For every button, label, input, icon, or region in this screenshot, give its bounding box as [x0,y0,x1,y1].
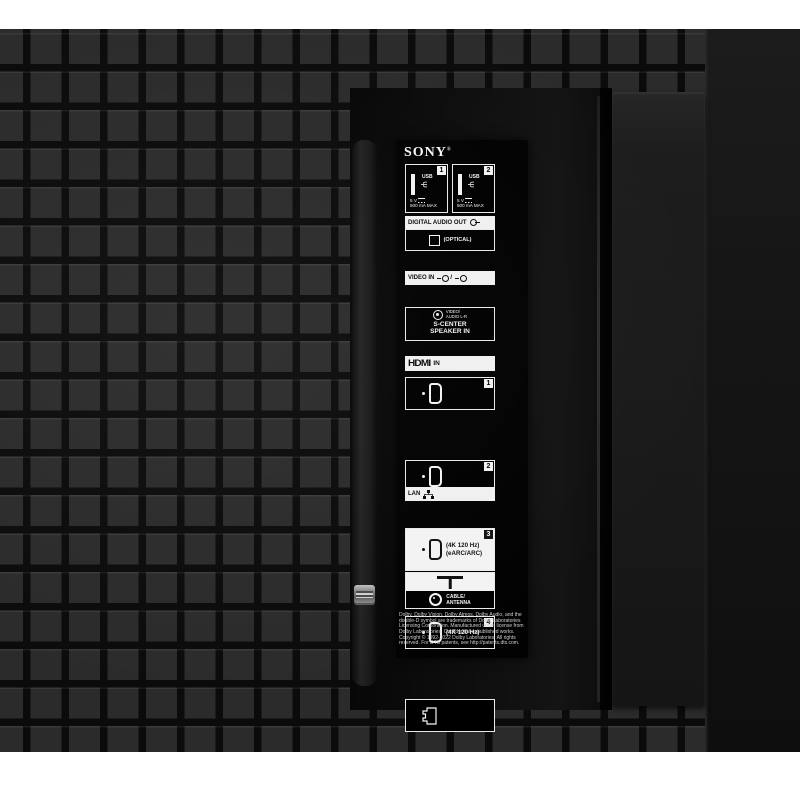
hdmi-connector-icon [429,383,442,404]
usb-port-2: 2 USB Ψ 5 V 500 mA MAX [452,164,495,213]
sony-logo: SONY® [404,145,451,161]
hdmi-port-1: 1 [405,377,495,410]
dc-voltage-icon [465,198,472,203]
ethernet-port-icon [420,706,438,726]
lan-port [405,699,495,732]
hdmi-in-header: HDMI IN [405,356,495,371]
terminal-cover-door [612,92,705,706]
registered-mark: ® [447,147,451,152]
port-number-badge: 2 [484,166,493,175]
cable-antenna-port: CABLE/ ANTENNA [405,572,495,609]
hdmi-logo: HDMI [408,358,430,368]
hdmi-connector-icon [429,466,442,487]
antenna-icon-area [406,573,494,591]
slash-separator: / [450,275,452,281]
minijack-icon [433,310,443,320]
optical-label: (OPTICAL) [444,237,472,243]
usb-port-1: 1 USB Ψ 5 V 500 mA MAX [405,164,448,213]
hdmi3-capability-label: (4K 120 Hz) (eARC/ARC) [446,542,482,557]
av-jack-icon [437,275,447,282]
audio-out-icon [470,219,477,226]
dc-voltage-icon [418,198,425,203]
usb-power-rating: 5 V 500 mA MAX [410,198,437,209]
port-number-badge: 3 [484,530,493,539]
port-dot-icon [422,392,425,395]
usb-section: 1 USB Ψ 5 V 500 mA MAX 2 USB Ψ 5 V 500 m… [405,164,495,213]
video-in-header: VIDEO IN / [405,271,495,285]
usb-power-rating: 5 V 500 mA MAX [457,198,484,209]
port-dot-icon [422,548,425,551]
port-number-badge: 2 [484,462,493,471]
av-jack-icon [455,275,465,282]
hdmi-in-label: IN [433,360,440,367]
usb-trident-icon: Ψ [419,181,428,188]
hdmi-connector-icon [429,539,442,560]
optical-out-port: (OPTICAL) [405,229,495,251]
network-icon [423,490,434,499]
right-frame-column [705,29,800,752]
lan-header: LAN [405,487,495,501]
video-audio-label: VIDEO/ AUDIO L-R [446,310,467,320]
cable-antenna-label: CABLE/ ANTENNA [446,594,470,606]
s-center-label: S-CENTER SPEAKER IN [406,321,494,336]
usb-label: USB [469,174,480,180]
usb-trident-icon: Ψ [466,181,475,188]
usb-label: USB [422,174,433,180]
legal-fine-print: Dolby, Dolby Vision, Dolby Atmos, Dolby … [399,613,525,647]
optical-port-icon [429,235,440,246]
hdmi-port-3: 3 (4K 120 Hz) (eARC/ARC) [405,528,495,571]
digital-audio-out-header: DIGITAL AUDIO OUT [405,216,495,229]
s-center-speaker-in-port: VIDEO/ AUDIO L-R S-CENTER SPEAKER IN [405,307,495,341]
port-number-badge: 1 [437,166,446,175]
port-number-badge: 1 [484,379,493,388]
usb-slot-icon [458,174,462,195]
hinge-screw [354,585,375,605]
tv-back-photo: SONY® 1 USB Ψ 5 V 500 mA MAX 2 USB Ψ 5 V [0,29,800,752]
connector-label-plate: SONY® 1 USB Ψ 5 V 500 mA MAX 2 USB Ψ 5 V [396,140,528,658]
antenna-icon-stem [449,578,452,589]
recess-shadow-gap [600,88,612,710]
coax-connector-icon [429,593,442,606]
usb-slot-icon [411,174,415,195]
port-dot-icon [422,475,425,478]
